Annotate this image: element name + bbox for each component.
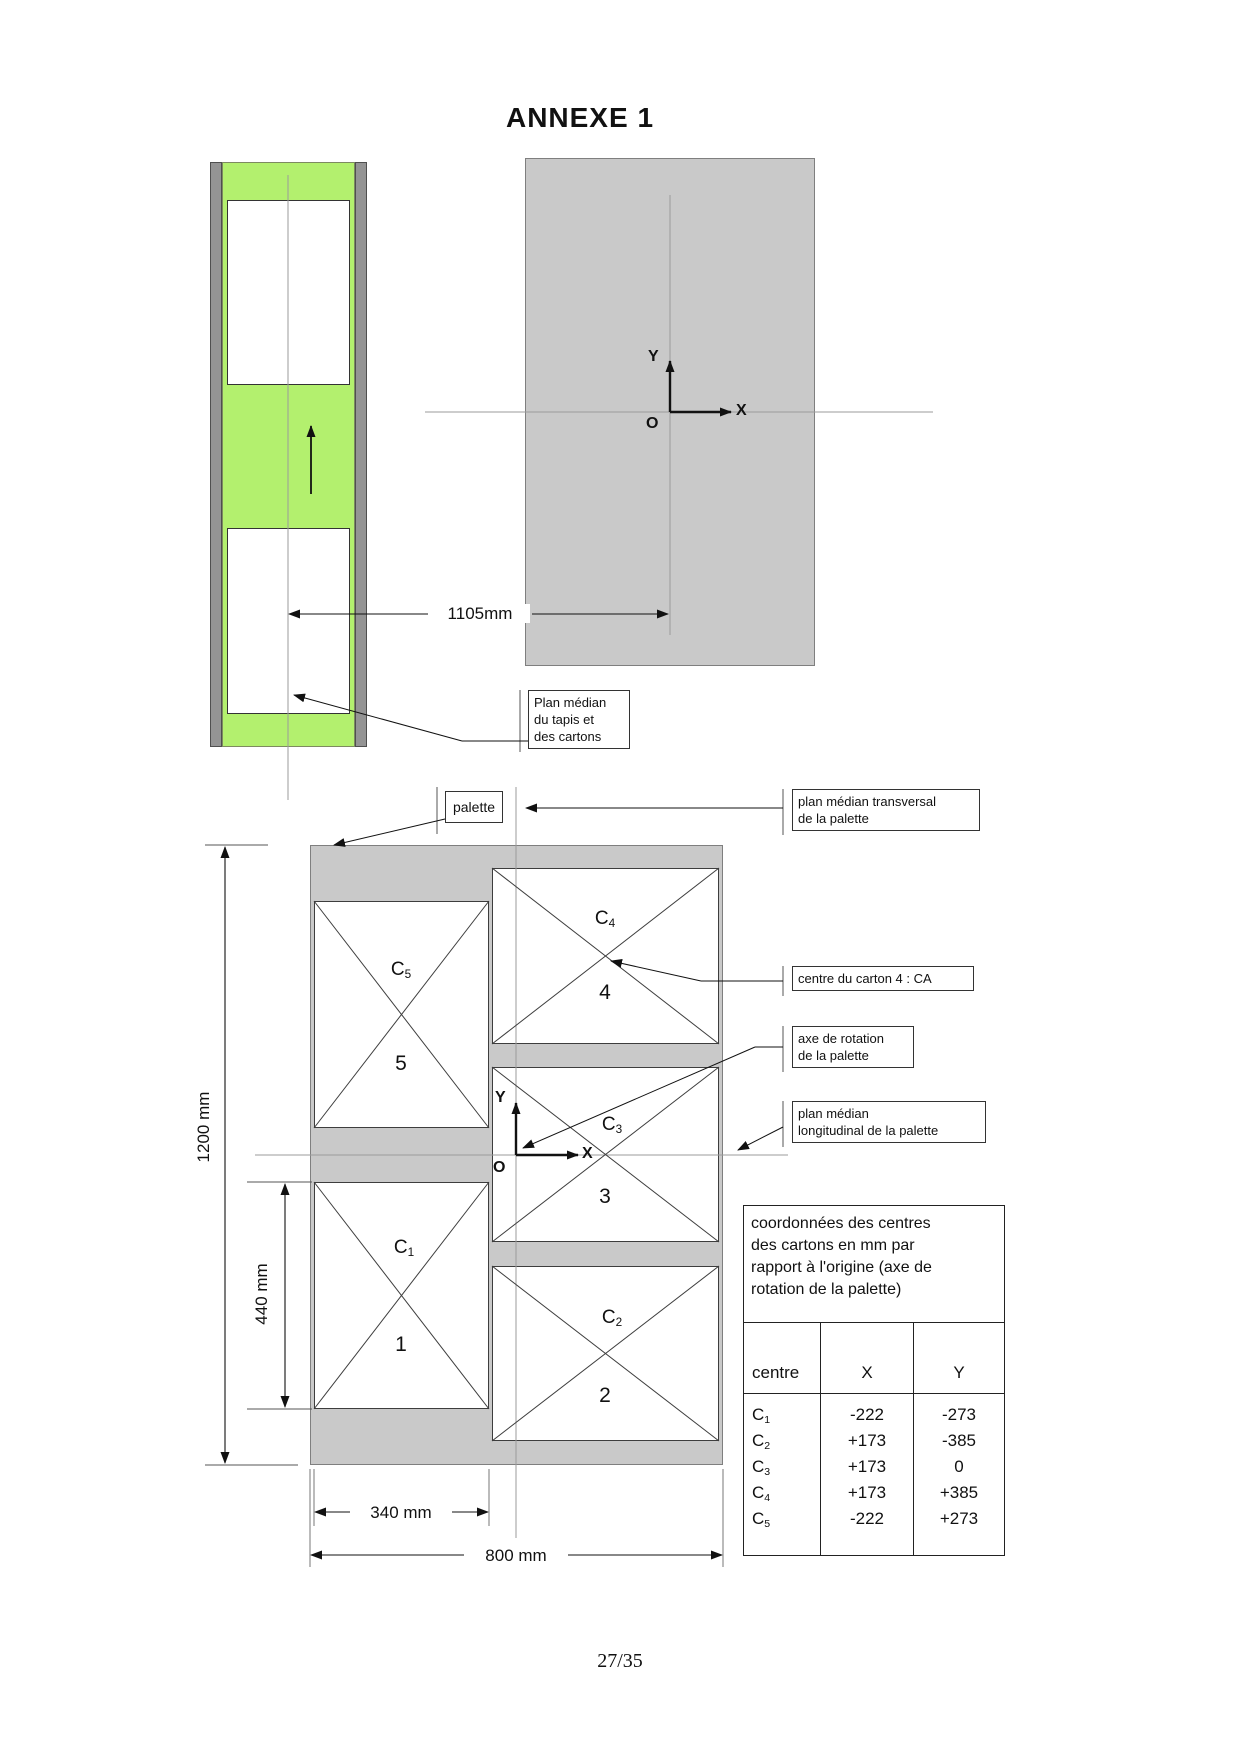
row-c5-label: C5 [744,1506,820,1532]
axe-rotation-box: axe de rotation de la palette [792,1026,914,1068]
bottom-axis-y-label: Y [495,1090,506,1106]
row-c4-label: C4 [744,1480,820,1506]
top-axis-y-label: Y [648,349,659,365]
row-c1-x: -222 [821,1402,913,1428]
row-c2-x: +173 [821,1428,913,1454]
axe-rotation-line1: axe de rotation [798,1030,908,1047]
top-axis-origin-label: O [646,416,658,432]
row-c1-label: C1 [744,1402,820,1428]
document-page: ANNEXE 1 X Y O 1105mm Plan médian du tap… [0,0,1240,1754]
dim-340-label: 340 mm [351,1503,451,1522]
carton-c1-label: C1 [394,1237,414,1259]
col-centre: centre C1 C2 C3 C4 C5 [744,1323,820,1555]
top-axis-x-label: X [736,403,747,419]
plan-longitudinal-line1: plan médian [798,1105,980,1122]
bottom-axis-x-label: X [582,1146,593,1162]
coordinates-title-line1: coordonnées des centres [751,1213,997,1235]
carton-c3-number: 3 [599,1185,611,1209]
dim-800-label: 800 mm [466,1546,566,1565]
carton-c4-number: 4 [599,981,611,1005]
leader-plan-transversal [526,789,783,835]
plan-transversal-line1: plan médian transversal [798,793,974,810]
row-c4-y: +385 [914,1480,1004,1506]
carton-c4 [492,868,719,1044]
coordinates-title-line3: rapport à l'origine (axe de [751,1257,997,1279]
plan-longitudinal-box: plan médian longitudinal de la palette [792,1101,986,1143]
conveyor-left-rail [210,162,222,747]
dim-440-label: 440 mm [252,1244,272,1344]
col-x: X -222 +173 +173 +173 -222 [820,1323,913,1555]
carton-c2-number: 2 [599,1384,611,1408]
coordinates-panel: coordonnées des centres des cartons en m… [743,1205,1005,1556]
carton-c4-label: C4 [595,908,615,930]
dim-1105-label: 1105mm [430,604,530,623]
plan-transversal-box: plan médian transversal de la palette [792,789,980,831]
coordinates-title: coordonnées des centres des cartons en m… [744,1206,1004,1323]
header-x: X [821,1323,913,1394]
row-c3-x: +173 [821,1454,913,1480]
plan-longitudinal-line2: longitudinal de la palette [798,1122,980,1139]
col-y: Y -273 -385 0 +385 +273 [913,1323,1004,1555]
plan-median-tapis-box: Plan médian du tapis et des cartons [528,690,630,749]
coordinates-title-line2: des cartons en mm par [751,1235,997,1257]
centre-carton4-box: centre du carton 4 : CA [792,966,974,991]
pallet-top-view [525,158,815,666]
plan-median-tapis-line2: du tapis et [534,711,624,728]
plan-transversal-line2: de la palette [798,810,974,827]
row-c5-x: -222 [821,1506,913,1532]
bottom-axis-origin-label: O [493,1160,505,1176]
header-centre: centre [744,1323,820,1394]
leader-plan-longitudinal [738,1101,783,1150]
coordinates-title-line4: rotation de la palette) [751,1279,997,1301]
row-c2-y: -385 [914,1428,1004,1454]
carton-c2 [492,1266,719,1441]
axe-rotation-line2: de la palette [798,1047,908,1064]
dim-1200-lines [205,845,298,1465]
plan-median-tapis-line3: des cartons [534,728,624,745]
row-c2-label: C2 [744,1428,820,1454]
conveyor-right-rail [355,162,367,747]
row-c5-y: +273 [914,1506,1004,1532]
plan-median-tapis-line1: Plan médian [534,694,624,711]
row-c3-label: C3 [744,1454,820,1480]
carton-c1-number: 1 [395,1333,407,1357]
carton-c5-label: C5 [391,959,411,981]
palette-label-box: palette [445,791,503,823]
carton-on-belt-2 [227,528,350,714]
header-y: Y [914,1323,1004,1394]
carton-c3-label: C3 [602,1114,622,1136]
coordinates-table: centre C1 C2 C3 C4 C5 X -222 +173 +173 +… [744,1323,1004,1555]
leader-palette [334,787,445,845]
carton-c5-number: 5 [395,1052,407,1076]
row-c1-y: -273 [914,1402,1004,1428]
page-title: ANNEXE 1 [430,102,730,134]
carton-c5 [314,901,489,1128]
carton-on-belt-1 [227,200,350,385]
carton-c2-label: C2 [602,1307,622,1329]
row-c3-y: 0 [914,1454,1004,1480]
page-number: 27/35 [0,1650,1240,1673]
dim-1200-label: 1200 mm [194,1077,214,1177]
row-c4-x: +173 [821,1480,913,1506]
carton-c3 [492,1067,719,1242]
carton-c1 [314,1182,489,1409]
